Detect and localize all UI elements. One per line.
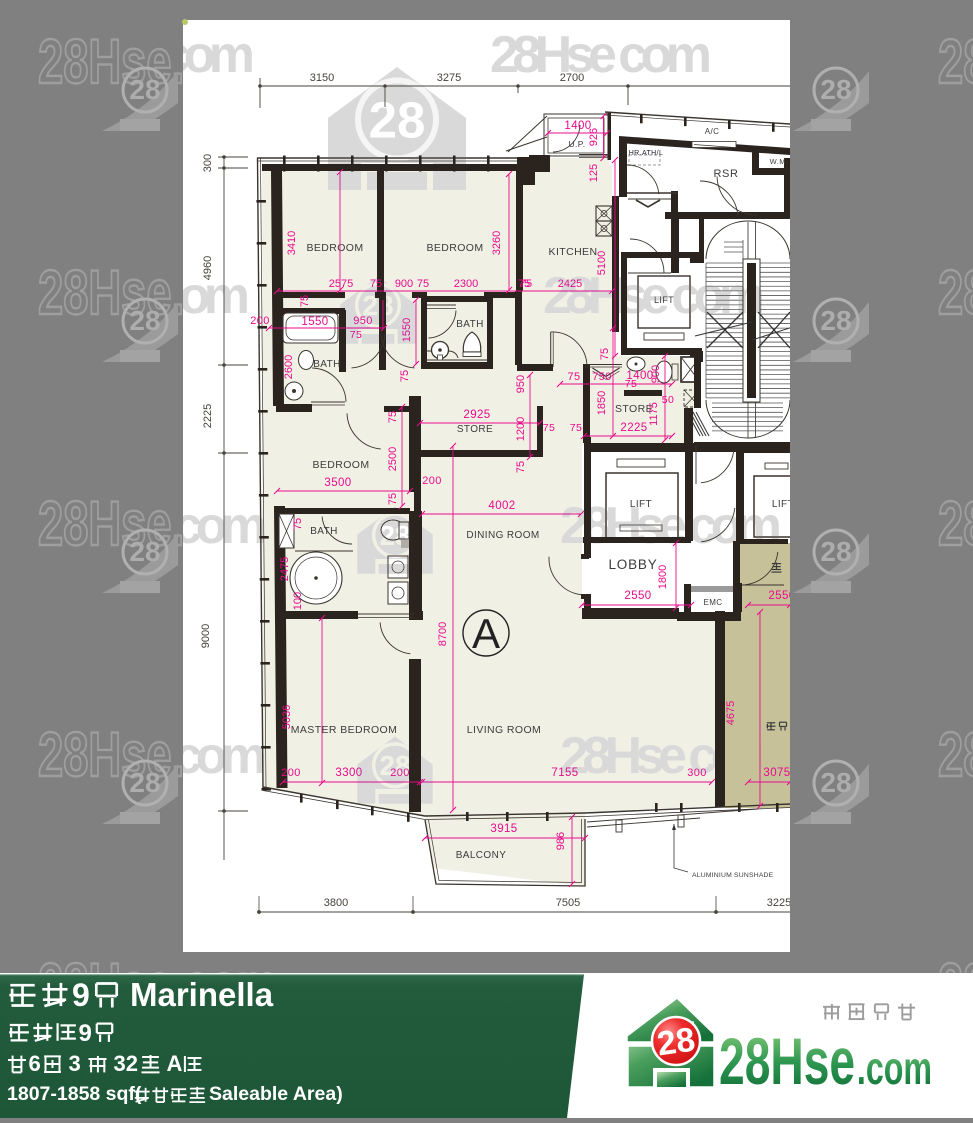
svg-text:28: 28 <box>129 536 160 567</box>
svg-text:5036: 5036 <box>281 705 293 729</box>
svg-text:75: 75 <box>599 348 611 360</box>
svg-text:KITCHEN: KITCHEN <box>549 246 598 258</box>
svg-text:A/C: A/C <box>705 127 720 136</box>
svg-text:2300: 2300 <box>454 278 478 290</box>
svg-text:200: 200 <box>250 315 270 327</box>
svg-text:28Hse.com: 28Hse.com <box>938 257 973 328</box>
svg-text:32: 32 <box>114 1051 138 1076</box>
svg-text:28Hse.com: 28Hse.com <box>560 727 782 785</box>
svg-text:28: 28 <box>820 536 851 567</box>
svg-text:75: 75 <box>625 378 637 390</box>
svg-text:2600: 2600 <box>283 355 295 379</box>
svg-text:2550: 2550 <box>624 590 651 602</box>
svg-text:75: 75 <box>299 295 311 307</box>
svg-text:28Hse.com: 28Hse.com <box>560 497 782 555</box>
svg-text:50: 50 <box>662 394 674 406</box>
svg-text:28Hse.com: 28Hse.com <box>938 488 973 559</box>
svg-text:28: 28 <box>820 305 851 336</box>
svg-text:200: 200 <box>281 767 301 779</box>
svg-text:1175: 1175 <box>648 402 660 426</box>
svg-text:75: 75 <box>387 493 399 505</box>
svg-text:9: 9 <box>72 977 90 1013</box>
svg-text:.com: .com <box>857 1043 932 1094</box>
svg-text:28: 28 <box>129 74 160 105</box>
svg-text:3800: 3800 <box>324 897 348 909</box>
svg-text:2475: 2475 <box>279 557 291 581</box>
svg-text:2500: 2500 <box>387 447 399 471</box>
svg-text:1200: 1200 <box>515 417 527 441</box>
svg-text:986: 986 <box>555 832 567 850</box>
svg-text:RSR: RSR <box>713 168 738 180</box>
svg-text:2225: 2225 <box>202 404 214 428</box>
svg-text:MASTER BEDROOM: MASTER BEDROOM <box>291 724 398 736</box>
svg-text:3150: 3150 <box>310 72 334 84</box>
svg-text:28: 28 <box>379 750 410 781</box>
svg-text:28: 28 <box>379 520 410 551</box>
svg-text:EMC: EMC <box>704 598 723 607</box>
svg-text:3: 3 <box>69 1051 81 1076</box>
svg-text:75: 75 <box>567 371 580 383</box>
svg-text:2575: 2575 <box>329 278 353 290</box>
svg-text:3500: 3500 <box>324 477 351 489</box>
svg-text:U.P.: U.P. <box>568 139 585 149</box>
svg-text:28: 28 <box>129 305 160 336</box>
svg-text:A: A <box>472 610 500 657</box>
svg-text:4002: 4002 <box>488 500 515 512</box>
svg-text:6: 6 <box>29 1051 41 1076</box>
svg-text:3225: 3225 <box>767 897 791 909</box>
svg-text:LIVING ROOM: LIVING ROOM <box>467 724 541 736</box>
svg-text:9000: 9000 <box>200 624 212 648</box>
svg-text:BATH: BATH <box>310 526 338 537</box>
svg-text:2925: 2925 <box>463 409 490 421</box>
svg-text:3915: 3915 <box>490 823 517 835</box>
svg-text:28: 28 <box>820 74 851 105</box>
svg-text:28Hse: 28Hse <box>719 1025 855 1099</box>
svg-text:75: 75 <box>387 411 399 423</box>
svg-text:8700: 8700 <box>437 622 449 646</box>
svg-text:28: 28 <box>820 767 851 798</box>
svg-text:BEDROOM: BEDROOM <box>312 459 369 471</box>
svg-text:BATH: BATH <box>313 359 341 370</box>
svg-text:28: 28 <box>369 92 426 149</box>
svg-text:28Hse.com: 28Hse.com <box>938 26 973 97</box>
svg-text:1850: 1850 <box>596 391 608 415</box>
svg-text:200: 200 <box>422 475 442 487</box>
svg-text:ALUMINIUM SUNSHADE: ALUMINIUM SUNSHADE <box>692 872 774 879</box>
svg-text:3260: 3260 <box>491 231 503 255</box>
svg-text:4675: 4675 <box>725 701 737 725</box>
svg-text:75: 75 <box>292 518 304 530</box>
svg-text:HR.ATH/L: HR.ATH/L <box>629 150 664 157</box>
svg-text:300: 300 <box>202 154 214 172</box>
svg-text:Saleable Area): Saleable Area) <box>209 1083 343 1105</box>
svg-text:1550: 1550 <box>301 316 328 328</box>
svg-text:75: 75 <box>515 461 527 473</box>
svg-text:7505: 7505 <box>556 897 580 909</box>
svg-text:75: 75 <box>570 422 582 434</box>
svg-text:2225: 2225 <box>620 422 647 434</box>
svg-text:28Hse.com: 28Hse.com <box>490 26 712 84</box>
svg-text:900: 900 <box>395 278 413 290</box>
svg-text:900: 900 <box>650 365 662 383</box>
svg-text:W.M.: W.M. <box>770 157 789 166</box>
svg-text:DINING ROOM: DINING ROOM <box>466 530 539 541</box>
svg-text:3275: 3275 <box>437 72 461 84</box>
svg-text:950: 950 <box>515 375 527 393</box>
svg-text:3410: 3410 <box>286 231 298 255</box>
svg-text:STORE: STORE <box>457 424 493 435</box>
svg-text:BEDROOM: BEDROOM <box>426 242 483 254</box>
svg-text:BALCONY: BALCONY <box>456 850 507 861</box>
svg-text:28: 28 <box>129 767 160 798</box>
svg-text:125: 125 <box>588 164 600 182</box>
svg-text:Marinella: Marinella <box>130 976 274 1013</box>
svg-text:9: 9 <box>79 1020 92 1047</box>
svg-text:75: 75 <box>417 278 429 290</box>
svg-text:LOBBY: LOBBY <box>608 557 657 572</box>
svg-text:28: 28 <box>655 1021 698 1064</box>
svg-text:75: 75 <box>543 422 555 434</box>
svg-text:A: A <box>167 1051 183 1076</box>
svg-text:750: 750 <box>592 371 612 383</box>
svg-text:1800: 1800 <box>657 565 669 589</box>
svg-text:1400: 1400 <box>564 120 591 132</box>
svg-text:28: 28 <box>362 290 393 321</box>
svg-text:100: 100 <box>292 592 304 610</box>
svg-text:75: 75 <box>399 370 411 382</box>
svg-text:28Hse.com: 28Hse.com <box>938 719 973 790</box>
svg-text:28Hse.com: 28Hse.com <box>543 267 765 325</box>
svg-text:75: 75 <box>519 278 532 290</box>
svg-text:BEDROOM: BEDROOM <box>306 242 363 254</box>
svg-text:BATH: BATH <box>456 319 484 330</box>
svg-text:1807-1858 sqf(: 1807-1858 sqf( <box>7 1083 142 1105</box>
